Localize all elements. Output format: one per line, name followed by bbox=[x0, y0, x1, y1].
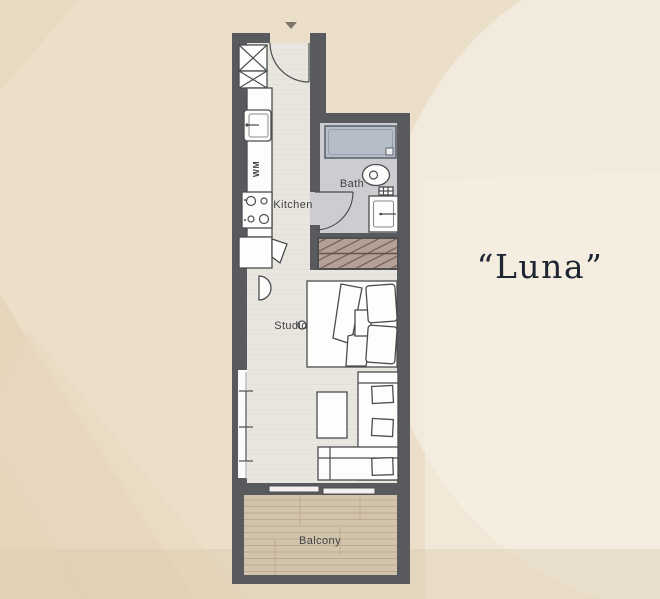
background-band-right bbox=[425, 172, 660, 599]
bath-left-wall bbox=[310, 123, 320, 192]
kitchen-sink bbox=[244, 110, 271, 141]
sofa-cushion bbox=[372, 418, 394, 436]
studio-label: Studio bbox=[274, 320, 308, 332]
washing-machine-label: WM bbox=[251, 161, 261, 177]
pillow bbox=[366, 284, 398, 323]
bath-left-wall-stub bbox=[310, 225, 320, 233]
vanity-sink bbox=[369, 196, 398, 232]
balcony-left-wall bbox=[232, 495, 244, 584]
floor-plan-screenshot: Kitchen Bath Studio Balcony WM “Luna” bbox=[0, 0, 660, 599]
wardrobe-left-stub bbox=[310, 233, 318, 270]
unit-name: “Luna” bbox=[477, 247, 604, 286]
sofa-cushion bbox=[372, 385, 394, 403]
bathtub bbox=[325, 126, 396, 158]
fridge bbox=[239, 237, 287, 268]
wardrobe bbox=[318, 238, 398, 269]
stove bbox=[242, 192, 272, 228]
pillow bbox=[366, 325, 398, 364]
bath-top-wall bbox=[310, 113, 410, 123]
coffee-table bbox=[317, 392, 347, 438]
tub-drain bbox=[386, 148, 393, 155]
balcony-bottom-wall bbox=[232, 575, 410, 584]
floor-plan-canvas: Kitchen Bath Studio Balcony WM “Luna” bbox=[0, 0, 660, 599]
sofa-cushion bbox=[372, 458, 394, 476]
left-window-outer-wall bbox=[232, 370, 238, 478]
right-wall bbox=[397, 113, 410, 584]
entry-right-wall bbox=[310, 33, 326, 123]
kitchen-label: Kitchen bbox=[273, 199, 313, 211]
bed bbox=[298, 281, 397, 367]
bath-label: Bath bbox=[340, 178, 364, 190]
service-shaft bbox=[239, 45, 267, 88]
balcony-label: Balcony bbox=[299, 535, 341, 547]
balcony-top-wall bbox=[232, 483, 410, 495]
